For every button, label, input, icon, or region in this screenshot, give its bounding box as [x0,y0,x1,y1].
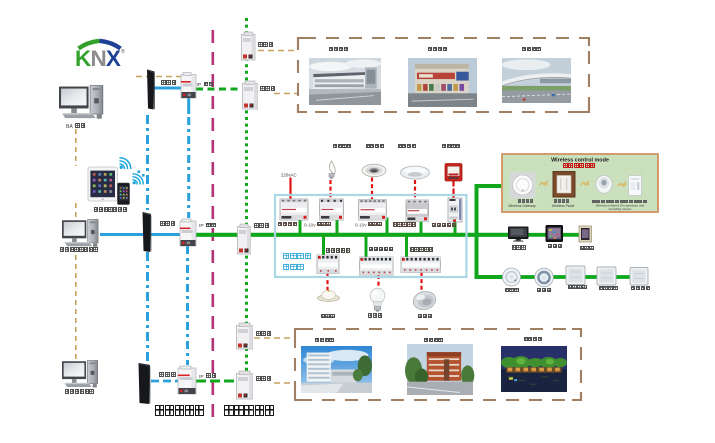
svg-text:Wireless Panel: Wireless Panel [552,204,575,208]
svg-text:220vAC: 220vAC [281,173,297,178]
svg-text:®: ® [121,48,125,55]
svg-text:IP: IP [197,82,202,88]
svg-text:BA: BA [66,124,73,130]
svg-text:IP: IP [199,223,204,229]
svg-text:KNX: KNX [75,46,121,71]
svg-text:Wireless Gateway: Wireless Gateway [508,204,536,208]
svg-text:0-10v: 0-10v [304,223,316,228]
svg-text:0-10v: 0-10v [355,223,367,228]
svg-text:IP: IP [199,374,204,380]
svg-text:humidity) sensor: humidity) sensor [609,207,632,211]
